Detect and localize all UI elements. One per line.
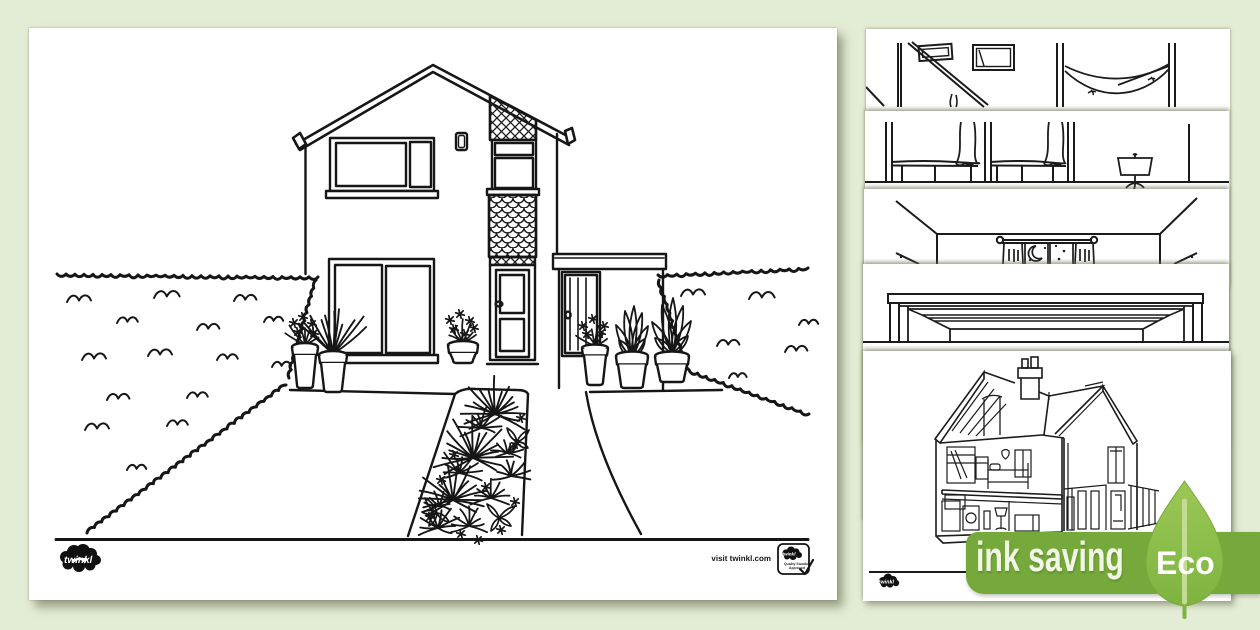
svg-text:Approved: Approved [789, 566, 805, 570]
svg-text:twinkl: twinkl [782, 551, 796, 556]
svg-text:twinkl: twinkl [878, 579, 894, 585]
svg-text:twinkl: twinkl [64, 555, 93, 566]
svg-text:visit twinkl.com: visit twinkl.com [711, 554, 771, 563]
